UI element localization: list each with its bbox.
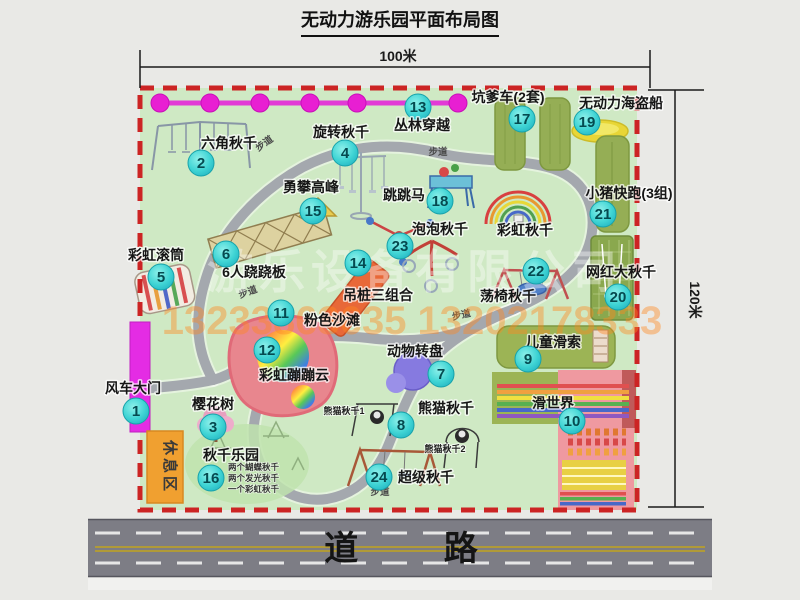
road-label: 道 路 bbox=[324, 530, 515, 568]
svg-text:彩虹蹦蹦云: 彩虹蹦蹦云 bbox=[258, 367, 329, 383]
svg-text:勇攀高峰: 勇攀高峰 bbox=[283, 179, 340, 195]
svg-text:秋千乐园: 秋千乐园 bbox=[203, 447, 259, 463]
svg-text:18: 18 bbox=[432, 193, 449, 210]
svg-text:21: 21 bbox=[595, 206, 612, 223]
svg-text:坑爹车(2套): 坑爹车(2套) bbox=[471, 89, 544, 105]
panda-swing-1-label: 熊猫秋千1 bbox=[323, 405, 364, 416]
svg-text:六角秋千: 六角秋千 bbox=[201, 135, 257, 151]
svg-text:吊桩三组合: 吊桩三组合 bbox=[343, 287, 414, 303]
svg-text:23: 23 bbox=[392, 238, 409, 255]
swing-note-2: 两个发光秋千 bbox=[228, 473, 280, 483]
svg-text:20: 20 bbox=[610, 289, 627, 306]
svg-text:24: 24 bbox=[371, 469, 388, 486]
swing-note-3: 一个彩虹秋千 bbox=[228, 484, 280, 494]
width-dimension-label: 100米 bbox=[379, 48, 417, 64]
svg-text:网红大秋千: 网红大秋千 bbox=[586, 264, 656, 280]
svg-text:无动力海盗船: 无动力海盗船 bbox=[578, 95, 663, 111]
map-canvas: 无动力游乐园平面布局图 步道 步道 步道 步道 步道 步道 bbox=[0, 0, 800, 600]
svg-text:风车大门: 风车大门 bbox=[105, 380, 161, 396]
svg-text:泡泡秋千: 泡泡秋千 bbox=[412, 221, 468, 237]
svg-text:跳跳马: 跳跳马 bbox=[383, 187, 425, 203]
svg-text:5: 5 bbox=[157, 269, 165, 286]
svg-text:荡椅秋千: 荡椅秋千 bbox=[480, 288, 536, 304]
svg-text:粉色沙滩: 粉色沙滩 bbox=[304, 312, 360, 328]
rainbow-cloud-small-icon bbox=[291, 385, 315, 409]
svg-text:22: 22 bbox=[528, 263, 545, 280]
svg-text:19: 19 bbox=[579, 114, 596, 131]
svg-text:10: 10 bbox=[564, 413, 581, 430]
svg-text:6人跷跷板: 6人跷跷板 bbox=[222, 264, 287, 280]
svg-text:15: 15 bbox=[305, 203, 322, 220]
svg-text:9: 9 bbox=[524, 351, 532, 368]
svg-text:11: 11 bbox=[273, 305, 289, 322]
svg-text:熊猫秋千: 熊猫秋千 bbox=[418, 400, 474, 416]
svg-text:樱花树: 樱花树 bbox=[192, 396, 234, 412]
svg-text:14: 14 bbox=[350, 255, 367, 272]
page-title: 无动力游乐园平面布局图 bbox=[301, 9, 499, 30]
svg-text:3: 3 bbox=[209, 419, 217, 436]
svg-text:动物转盘: 动物转盘 bbox=[387, 343, 443, 359]
rest-area: 休息区 bbox=[147, 431, 183, 503]
svg-text:丛林穿越: 丛林穿越 bbox=[394, 117, 451, 133]
svg-text:7: 7 bbox=[437, 366, 445, 383]
panda-swing-2-label: 熊猫秋千2 bbox=[424, 443, 465, 454]
svg-text:1: 1 bbox=[132, 403, 140, 420]
svg-text:小猪快跑(3组): 小猪快跑(3组) bbox=[585, 185, 672, 201]
svg-text:17: 17 bbox=[514, 111, 531, 128]
road: 道 路 bbox=[88, 519, 712, 590]
walkway-label: 步道 bbox=[428, 146, 448, 158]
svg-text:旋转秋千: 旋转秋千 bbox=[312, 124, 369, 140]
svg-text:6: 6 bbox=[222, 246, 230, 263]
playground-layout-map: 无动力游乐园平面布局图 步道 步道 步道 步道 步道 步道 bbox=[0, 0, 800, 600]
swing-note-1: 两个蝴蝶秋千 bbox=[228, 462, 280, 472]
rest-area-label: 休息区 bbox=[161, 439, 179, 494]
rainbow-swing-label: 彩虹秋千 bbox=[496, 222, 553, 238]
height-dimension-label: 120米 bbox=[687, 281, 703, 319]
svg-text:2: 2 bbox=[197, 155, 205, 172]
svg-text:8: 8 bbox=[397, 417, 405, 434]
svg-text:16: 16 bbox=[203, 470, 220, 487]
svg-text:超级秋千: 超级秋千 bbox=[397, 469, 454, 485]
svg-text:12: 12 bbox=[259, 342, 276, 359]
svg-text:4: 4 bbox=[341, 145, 350, 162]
svg-text:彩虹滚筒: 彩虹滚筒 bbox=[127, 247, 184, 263]
watermark-phone: 13233863635 13202178333 bbox=[162, 299, 663, 343]
svg-text:13: 13 bbox=[410, 99, 427, 116]
